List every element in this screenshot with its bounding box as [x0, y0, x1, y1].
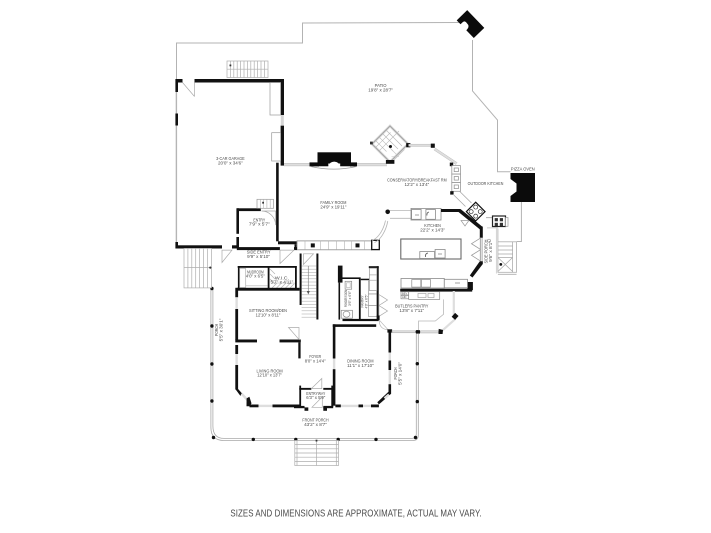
- svg-text:24'9" x 19'11": 24'9" x 19'11": [320, 204, 346, 209]
- svg-text:11'1" x 17'10": 11'1" x 17'10": [347, 363, 374, 368]
- svg-text:5'5" x 30'1": 5'5" x 30'1": [218, 318, 223, 341]
- svg-text:PIZZA OVEN: PIZZA OVEN: [511, 166, 535, 172]
- svg-text:12'2" x 13'4": 12'2" x 13'4": [405, 182, 430, 187]
- svg-text:12'10" x 13'7": 12'10" x 13'7": [257, 373, 282, 378]
- svg-text:5'7" x 4'11": 5'7" x 4'11": [271, 280, 294, 285]
- svg-text:12'10" x 8'11": 12'10" x 8'11": [256, 313, 281, 318]
- svg-text:43'2" x 8'7": 43'2" x 8'7": [304, 422, 327, 427]
- svg-text:BEV.: BEV.: [402, 292, 408, 296]
- svg-text:7'9" x 5'7": 7'9" x 5'7": [249, 222, 270, 227]
- svg-text:4'0" x 6'5": 4'0" x 6'5": [365, 294, 369, 309]
- svg-text:22'2" x 14'3": 22'2" x 14'3": [420, 228, 445, 233]
- svg-text:3'6" x 6'6": 3'6" x 6'6": [348, 290, 352, 306]
- svg-text:SIZES AND DIMENSIONS ARE APPRO: SIZES AND DIMENSIONS ARE APPROXIMATE, AC…: [230, 508, 481, 519]
- svg-text:OUTDOOR KITCHEN: OUTDOOR KITCHEN: [468, 181, 504, 187]
- svg-text:13'8" x 7'11": 13'8" x 7'11": [399, 308, 424, 313]
- svg-text:AID: AID: [402, 295, 406, 299]
- svg-text:5'5" x 14'0": 5'5" x 14'0": [397, 362, 402, 385]
- svg-text:4'0" x 6'5": 4'0" x 6'5": [246, 274, 265, 279]
- svg-text:8'0" x 14'4": 8'0" x 14'4": [305, 359, 326, 364]
- svg-text:9'9" x 5'10": 9'9" x 5'10": [247, 254, 270, 259]
- svg-text:20'0" x 34'6": 20'0" x 34'6": [218, 160, 243, 165]
- svg-text:19'8" x 28'7": 19'8" x 28'7": [368, 87, 393, 92]
- svg-text:9'6" x 8'1": 9'6" x 8'1": [488, 241, 493, 262]
- svg-text:6'3" x 5'9": 6'3" x 5'9": [306, 395, 325, 400]
